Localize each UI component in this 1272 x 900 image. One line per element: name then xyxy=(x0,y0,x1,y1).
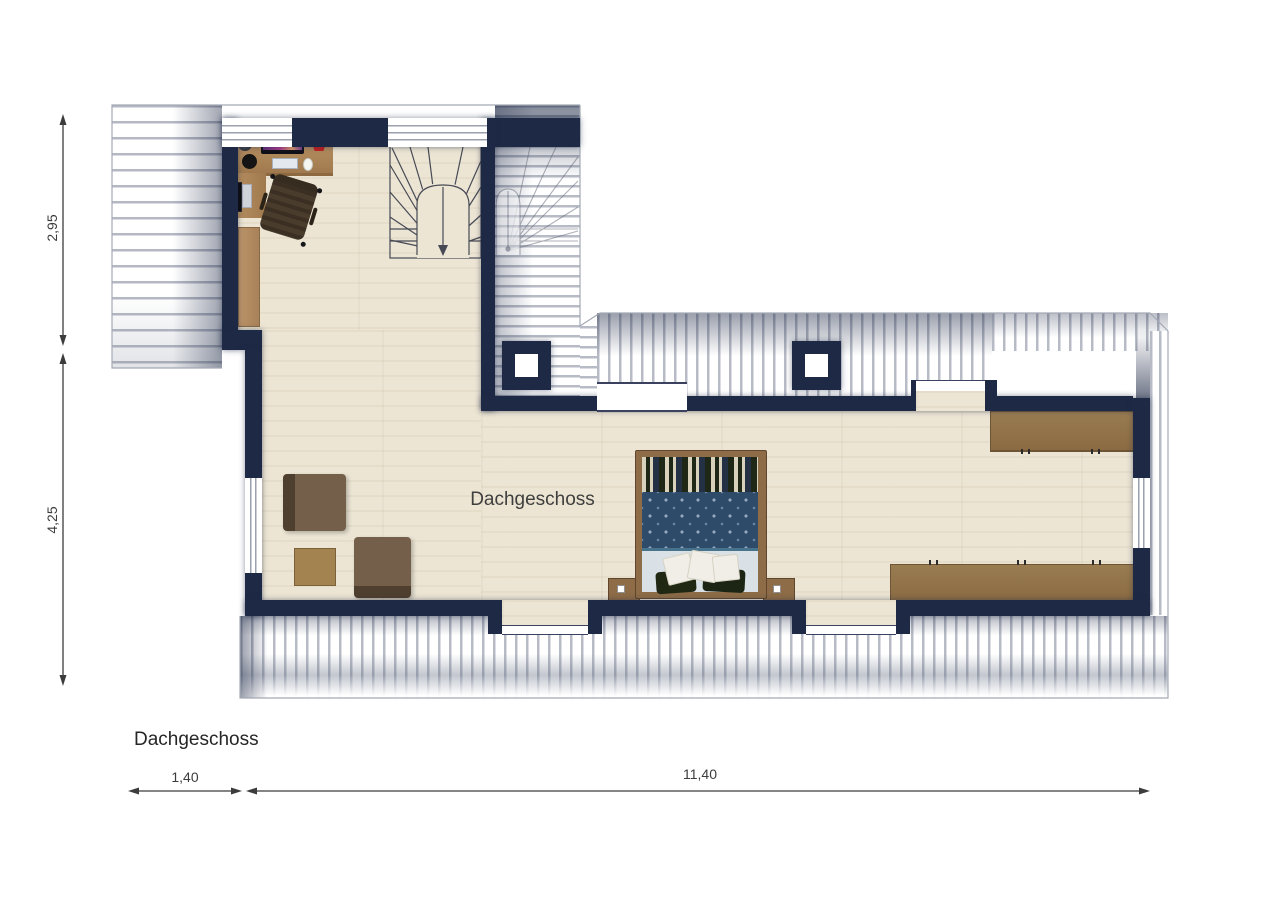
dimension-label-11-40: 11,40 xyxy=(668,766,732,782)
dimension-lines xyxy=(0,0,1272,900)
dimension-label-4-25: 4,25 xyxy=(44,496,60,544)
floor-title: Dachgeschoss xyxy=(134,729,259,751)
dimension-label-1-40: 1,40 xyxy=(160,769,210,785)
room-label: Dachgeschoss xyxy=(460,489,605,511)
dimension-label-2-95: 2,95 xyxy=(44,204,60,252)
floor-plan-canvas: 2,95 4,25 1,40 11,40 Dachgeschoss Dachge… xyxy=(0,0,1272,900)
